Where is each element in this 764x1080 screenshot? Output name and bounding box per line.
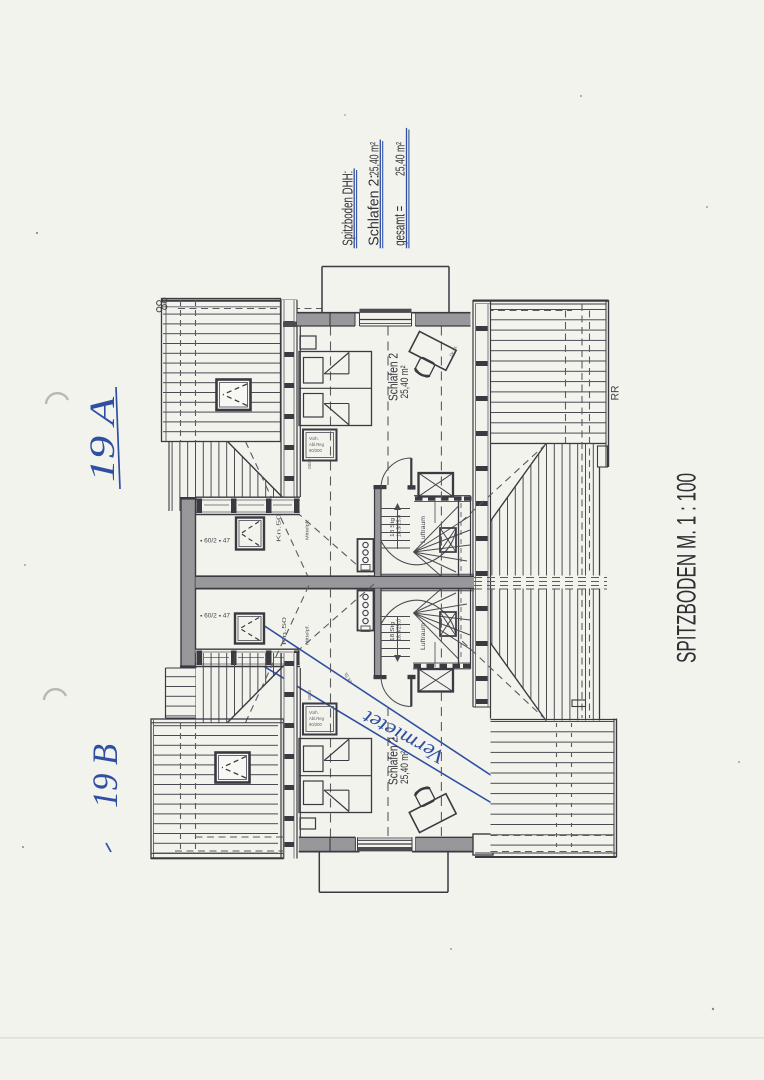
svg-text:Abl.Reg: Abl.Reg xyxy=(309,442,325,447)
svg-text:Luftraum: Luftraum xyxy=(420,516,427,543)
svg-text:Abl.Reg: Abl.Reg xyxy=(309,716,325,721)
svg-text:90/200: 90/200 xyxy=(309,448,322,453)
svg-text:18,5/25,0: 18,5/25,0 xyxy=(397,515,403,537)
svg-text:25,40 m²: 25,40 m² xyxy=(367,142,382,176)
svg-text:Kn.50: Kn.50 xyxy=(277,514,283,542)
svg-text:2x90/200: 2x90/200 xyxy=(307,690,312,700)
svg-text:▪ 60/2 ▪ 47: ▪ 60/2 ▪ 47 xyxy=(200,614,231,620)
svg-text:90/200: 90/200 xyxy=(309,722,322,727)
svg-text:25,40 m²: 25,40 m² xyxy=(399,365,411,398)
svg-text:25,40 m²: 25,40 m² xyxy=(393,142,408,176)
svg-text:Vorh.: Vorh. xyxy=(309,436,319,441)
svg-text:Vorh.: Vorh. xyxy=(309,710,319,715)
svg-text:RR: RR xyxy=(610,385,622,400)
svg-text:25,40 m²: 25,40 m² xyxy=(399,751,411,784)
svg-text:2x90/200: 2x90/200 xyxy=(307,459,312,469)
svg-text:Luftraum: Luftraum xyxy=(420,623,427,650)
svg-text:18 Stg: 18 Stg xyxy=(390,622,396,641)
svg-text:19 B: 19 B xyxy=(85,744,125,808)
svg-text:Mittelpf.: Mittelpf. xyxy=(305,520,310,540)
svg-text:SPITZBODEN M. 1 : 100: SPITZBODEN M. 1 : 100 xyxy=(672,473,702,663)
svg-text:18 Stg: 18 Stg xyxy=(390,518,396,537)
svg-text:18,5/25,0: 18,5/25,0 xyxy=(397,619,403,641)
svg-text:Mittelpf.: Mittelpf. xyxy=(305,625,310,645)
svg-text:▪ 60/2 ▪ 47: ▪ 60/2 ▪ 47 xyxy=(200,539,231,545)
